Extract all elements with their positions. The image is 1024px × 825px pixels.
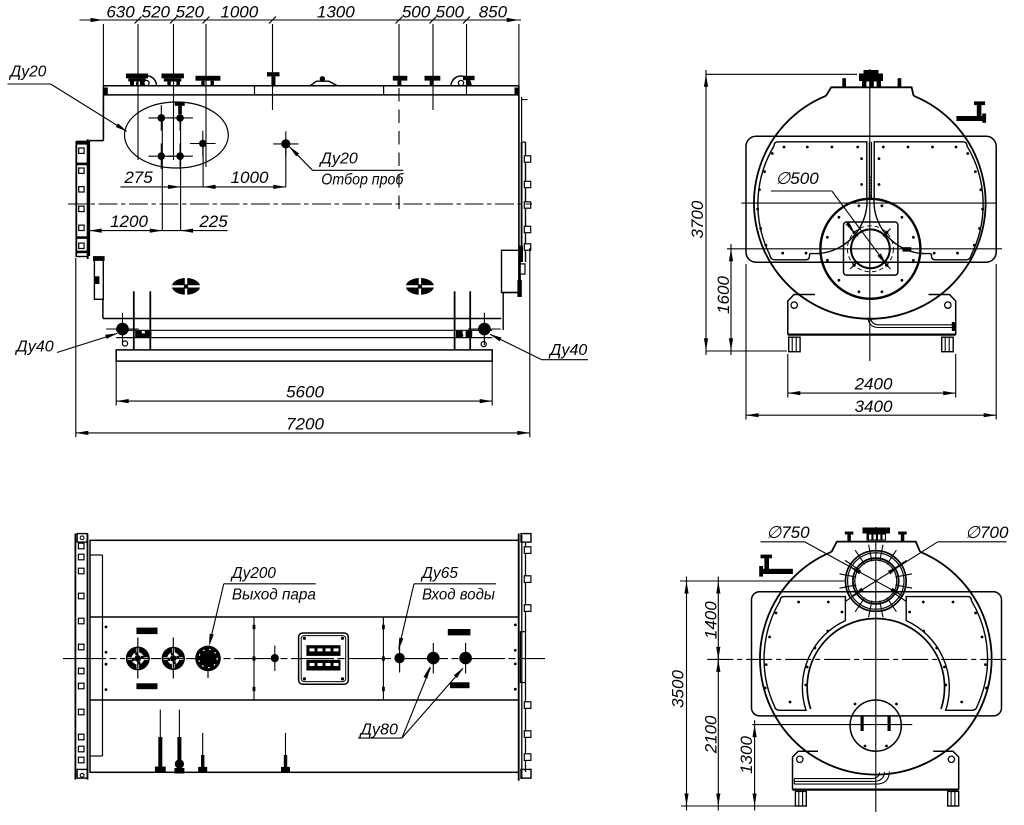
svg-text:Вход воды: Вход воды xyxy=(422,587,495,604)
svg-text:1600: 1600 xyxy=(714,276,733,314)
svg-text:850: 850 xyxy=(479,3,508,22)
svg-text:1200: 1200 xyxy=(110,212,148,231)
svg-text:1000: 1000 xyxy=(231,168,269,187)
svg-text:∅500: ∅500 xyxy=(776,169,820,188)
svg-text:5600: 5600 xyxy=(286,383,324,402)
svg-text:3400: 3400 xyxy=(855,397,893,416)
svg-text:500: 500 xyxy=(436,3,465,22)
svg-text:Ду80: Ду80 xyxy=(359,722,398,739)
svg-text:630: 630 xyxy=(106,3,135,22)
svg-text:1400: 1400 xyxy=(702,601,721,639)
svg-text:1000: 1000 xyxy=(220,3,258,22)
svg-text:3700: 3700 xyxy=(688,200,707,238)
svg-text:Ду200: Ду200 xyxy=(230,565,276,582)
svg-text:Отбор проб: Отбор проб xyxy=(321,171,404,188)
svg-text:Ду65: Ду65 xyxy=(420,565,458,582)
svg-text:∅700: ∅700 xyxy=(965,523,1009,542)
svg-text:Ду20: Ду20 xyxy=(319,151,358,168)
svg-text:520: 520 xyxy=(176,3,205,22)
svg-text:520: 520 xyxy=(142,3,171,22)
svg-text:Ду20: Ду20 xyxy=(8,63,46,80)
svg-text:Ду40: Ду40 xyxy=(14,339,53,356)
svg-text:2400: 2400 xyxy=(854,375,893,394)
svg-text:2100: 2100 xyxy=(702,715,721,754)
svg-text:1300: 1300 xyxy=(737,736,756,774)
svg-text:Выход пара: Выход пара xyxy=(232,587,316,604)
svg-text:1300: 1300 xyxy=(317,3,355,22)
svg-text:∅750: ∅750 xyxy=(766,523,810,542)
svg-text:Ду40: Ду40 xyxy=(548,342,587,359)
svg-text:275: 275 xyxy=(123,168,153,187)
svg-text:225: 225 xyxy=(198,212,228,231)
svg-text:7200: 7200 xyxy=(286,414,324,433)
svg-text:3500: 3500 xyxy=(668,670,687,708)
svg-text:500: 500 xyxy=(402,3,431,22)
